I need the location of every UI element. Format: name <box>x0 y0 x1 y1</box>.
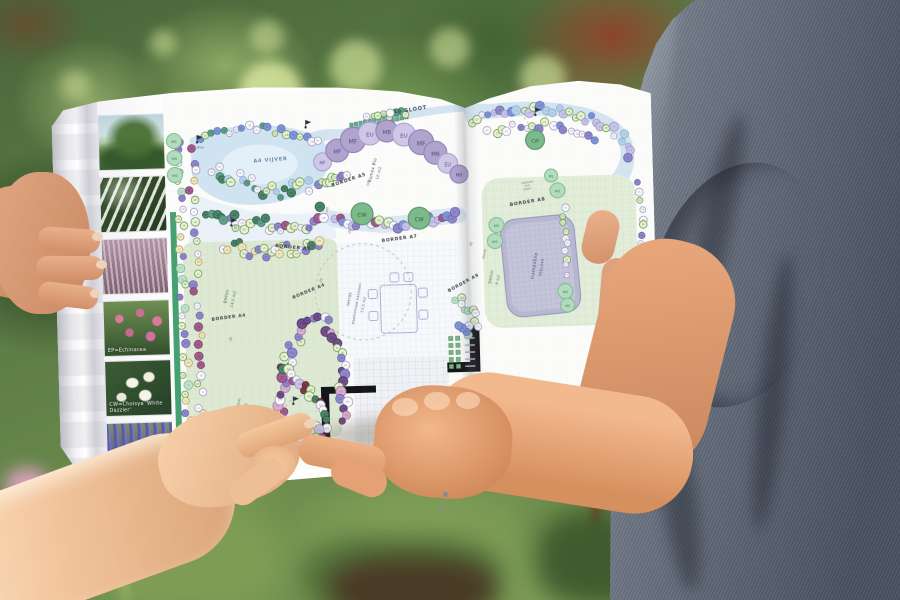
svg-text:GB: GB <box>293 225 297 228</box>
svg-text:SO: SO <box>640 234 643 237</box>
svg-text:AM: AM <box>197 261 201 264</box>
svg-text:MF: MF <box>319 160 326 166</box>
svg-text:AC: AC <box>485 129 489 132</box>
svg-text:CO: CO <box>193 180 197 183</box>
legend-square <box>449 357 453 361</box>
svg-text:NS: NS <box>298 180 302 184</box>
svg-text:UT: UT <box>505 129 509 133</box>
svg-text:VB: VB <box>279 196 283 199</box>
svg-text:CO: CO <box>199 364 203 367</box>
bokeh-spot <box>330 40 382 92</box>
svg-text:AB: AB <box>295 253 299 256</box>
svg-text:PF: PF <box>318 239 322 243</box>
svg-text:TE: TE <box>187 383 191 387</box>
svg-text:NS: NS <box>292 133 296 137</box>
svg-text:EU: EU <box>444 162 451 168</box>
plant-photo-ornamental-grass <box>101 237 175 295</box>
svg-text:CW: CW <box>531 138 539 144</box>
svg-text:GB: GB <box>307 190 311 193</box>
svg-text:SO: SO <box>563 250 566 253</box>
svg-text:AM: AM <box>342 408 346 411</box>
svg-text:SO: SO <box>279 128 283 131</box>
svg-text:VB: VB <box>248 123 252 127</box>
svg-text:TE: TE <box>199 374 203 378</box>
svg-text:SD: SD <box>354 225 357 228</box>
svg-text:OT: OT <box>184 341 188 345</box>
svg-text:AS: AS <box>280 375 284 379</box>
svg-text:AM: AM <box>196 383 200 386</box>
svg-text:PG: PG <box>287 344 290 347</box>
svg-text:CO: CO <box>196 305 200 308</box>
legend-square <box>449 364 453 368</box>
svg-text:NS: NS <box>260 222 264 225</box>
svg-text:MS: MS <box>492 240 498 244</box>
svg-text:MS: MS <box>565 304 570 308</box>
svg-text:LV: LV <box>202 391 205 394</box>
svg-text:AM: AM <box>291 361 295 364</box>
svg-text:PF: PF <box>249 221 253 225</box>
svg-text:CF: CF <box>612 125 616 129</box>
svg-text:GB: GB <box>289 191 293 195</box>
svg-text:SN: SN <box>340 357 344 360</box>
left-holding-finger <box>36 256 104 280</box>
svg-text:MS: MS <box>172 174 178 178</box>
svg-text:HB: HB <box>298 382 302 386</box>
svg-text:GB: GB <box>285 133 289 137</box>
svg-text:GB: GB <box>270 184 274 188</box>
bokeh-spot <box>60 70 90 100</box>
watch-button <box>440 506 444 510</box>
svg-text:SD: SD <box>636 181 639 184</box>
svg-text:AS: AS <box>264 216 268 220</box>
svg-text:PG: PG <box>316 316 319 319</box>
svg-text:CR: CR <box>450 217 454 221</box>
svg-text:MS: MS <box>549 174 554 178</box>
svg-text:AC: AC <box>583 121 587 124</box>
left-holding-finger <box>37 226 101 254</box>
svg-text:PG: PG <box>285 382 288 385</box>
svg-text:RG: RG <box>377 218 381 222</box>
svg-text:VB: VB <box>538 104 542 108</box>
svg-text:DG: DG <box>304 384 308 387</box>
fingernail <box>96 260 107 269</box>
svg-text:VB: VB <box>552 124 556 128</box>
svg-text:SD: SD <box>282 355 286 359</box>
svg-text:EP: EP <box>300 329 304 333</box>
svg-text:MS: MS <box>171 140 177 144</box>
svg-text:NA: NA <box>365 115 369 118</box>
svg-text:SO: SO <box>255 129 258 132</box>
svg-text:SN: SN <box>192 290 195 293</box>
svg-text:VB: VB <box>245 182 249 185</box>
svg-text:VB: VB <box>199 138 203 141</box>
svg-text:CW: CW <box>358 213 368 219</box>
plant-photo-echinacea: EP=Echinacea <box>102 299 176 357</box>
plant-photo-white-plumes <box>99 175 173 233</box>
svg-text:CF: CF <box>579 114 583 118</box>
svg-text:LV: LV <box>190 147 193 150</box>
svg-text:MF: MF <box>349 138 358 145</box>
svg-text:GB: GB <box>310 140 314 144</box>
svg-text:AA: AA <box>182 255 186 258</box>
svg-text:CO: CO <box>195 240 199 243</box>
svg-text:MJ: MJ <box>568 111 571 114</box>
svg-text:SO: SO <box>564 263 567 266</box>
svg-text:OF: OF <box>528 111 532 115</box>
svg-text:CF: CF <box>626 156 630 160</box>
bokeh-spot <box>430 28 470 68</box>
photo-caption: CW=Choisya 'White Dazzler' <box>109 400 176 414</box>
svg-text:OM: OM <box>307 227 311 230</box>
svg-text:AC: AC <box>551 112 555 115</box>
svg-text:SN: SN <box>197 354 201 358</box>
svg-text:CW: CW <box>415 217 425 223</box>
svg-text:OM: OM <box>225 249 229 252</box>
bokeh-spot <box>250 20 284 54</box>
svg-text:OM: OM <box>247 255 251 258</box>
svg-text:AC: AC <box>561 129 565 132</box>
svg-text:SO: SO <box>228 133 231 136</box>
fingernail <box>92 232 103 241</box>
svg-text:UT: UT <box>623 132 627 136</box>
svg-text:SD: SD <box>306 320 309 323</box>
svg-text:AA: AA <box>197 343 201 346</box>
svg-text:DG: DG <box>317 428 322 432</box>
svg-text:AS: AS <box>299 341 303 344</box>
svg-text:PG: PG <box>335 347 338 350</box>
svg-text:MS: MS <box>563 290 569 294</box>
svg-text:SO: SO <box>242 228 246 232</box>
svg-text:VB: VB <box>223 129 227 132</box>
svg-text:GB: GB <box>239 172 243 175</box>
svg-text:VB: VB <box>641 209 645 212</box>
svg-text:MF: MF <box>417 140 426 147</box>
knuckle-highlight <box>456 392 480 409</box>
svg-text:AA: AA <box>184 412 188 415</box>
svg-text:VB: VB <box>273 133 277 136</box>
fingernail <box>90 289 100 298</box>
svg-text:Wilg: Wilg <box>196 145 203 149</box>
svg-text:AA: AA <box>191 283 195 287</box>
svg-text:SO: SO <box>270 227 274 230</box>
svg-text:VB: VB <box>298 136 302 139</box>
legend-square <box>449 343 453 347</box>
svg-text:OM: OM <box>279 230 283 233</box>
svg-text:SN: SN <box>338 397 342 401</box>
svg-text:AC: AC <box>511 123 515 126</box>
svg-text:VB: VB <box>629 149 633 152</box>
svg-text:MB: MB <box>431 152 440 158</box>
svg-text:SN: SN <box>282 411 286 414</box>
svg-text:OS: OS <box>341 379 345 383</box>
legend-square <box>449 336 453 340</box>
svg-text:SO: SO <box>376 115 379 118</box>
svg-text:CO: CO <box>178 296 182 299</box>
svg-text:SO: SO <box>638 199 641 202</box>
svg-text:MJ: MJ <box>498 108 501 112</box>
svg-text:CO: CO <box>177 218 181 221</box>
svg-text:AA: AA <box>183 333 187 336</box>
svg-text:PF: PF <box>222 218 226 222</box>
svg-text:VB: VB <box>605 127 609 130</box>
svg-text:OS: OS <box>290 351 294 355</box>
foreground-plant <box>330 558 495 600</box>
svg-text:MS: MS <box>555 189 561 193</box>
photo-caption: EP=Echinacea <box>108 347 147 354</box>
svg-text:MJ: MJ <box>599 124 602 128</box>
svg-text:NS: NS <box>233 213 237 217</box>
svg-text:KS: KS <box>307 394 311 398</box>
svg-text:SN: SN <box>193 232 197 235</box>
svg-text:NS: NS <box>229 180 233 184</box>
svg-text:MF: MF <box>333 150 341 156</box>
svg-text:EP: EP <box>346 400 350 404</box>
svg-text:AC: AC <box>514 108 518 112</box>
svg-text:SO: SO <box>345 174 348 177</box>
svg-text:SN: SN <box>194 169 198 172</box>
svg-text:SO: SO <box>204 134 207 137</box>
svg-text:GB: GB <box>322 216 326 220</box>
svg-text:MS: MS <box>172 157 178 161</box>
svg-text:AM: AM <box>196 325 200 329</box>
svg-text:SN: SN <box>327 319 331 322</box>
svg-text:SO: SO <box>561 221 564 224</box>
svg-text:AC: AC <box>587 134 591 137</box>
svg-text:GB: GB <box>209 132 213 135</box>
svg-text:RG: RG <box>404 225 408 228</box>
svg-text:OT: OT <box>179 266 183 270</box>
svg-text:AM: AM <box>193 199 197 202</box>
legend-square <box>449 350 453 354</box>
svg-text:HB: HB <box>325 426 329 430</box>
svg-text:LS: LS <box>263 247 266 250</box>
svg-text:MP: MP <box>187 362 191 365</box>
plant-photo-willow <box>97 113 171 171</box>
svg-text:EU: EU <box>400 134 408 140</box>
svg-text:EU: EU <box>366 133 374 139</box>
svg-text:AS: AS <box>339 389 343 393</box>
knuckle-highlight <box>392 398 418 416</box>
bokeh-spot <box>150 30 176 56</box>
svg-text:SD: SD <box>279 394 282 397</box>
svg-text:AC: AC <box>480 114 484 117</box>
svg-text:AM: AM <box>289 373 293 376</box>
knuckle-highlight <box>424 392 450 410</box>
svg-text:VB: VB <box>503 113 507 116</box>
svg-text:TE: TE <box>184 307 188 310</box>
svg-text:SD: SD <box>345 414 349 417</box>
svg-text:SN: SN <box>297 336 300 339</box>
svg-text:NA: NA <box>382 113 386 116</box>
svg-text:AC: AC <box>612 135 616 138</box>
svg-text:MB: MB <box>383 130 392 136</box>
photo-scene: EP=EchinaceaCW=Choisya 'White Dazzler'SN… <box>0 0 900 600</box>
svg-text:NS: NS <box>218 166 222 169</box>
svg-text:AA: AA <box>194 220 198 224</box>
sloot-tag <box>386 109 394 117</box>
svg-text:VB: VB <box>210 171 214 174</box>
watch-crown <box>443 492 448 497</box>
svg-text:AA: AA <box>197 407 201 410</box>
svg-text:MS: MS <box>494 224 500 228</box>
plant-photo-choisya: CW=Choisya 'White Dazzler' <box>104 359 178 417</box>
svg-text:CO: CO <box>181 374 185 377</box>
svg-text:SO: SO <box>564 207 568 210</box>
